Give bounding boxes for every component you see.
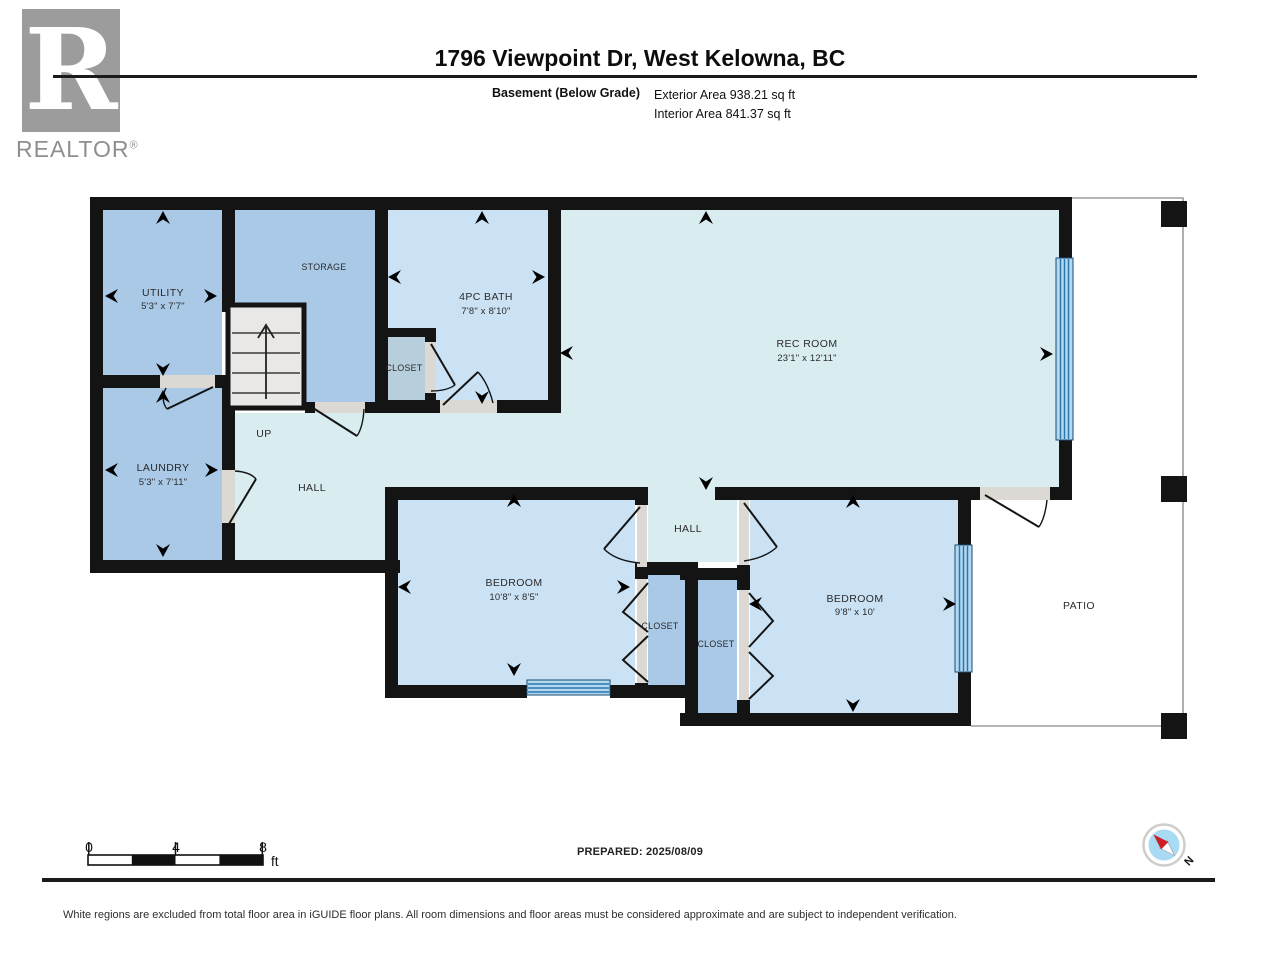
floor-plan-page: R REALTOR® 1796 Viewpoint Dr, West Kelow…	[0, 0, 1280, 960]
label-laundry: LAUNDRY	[137, 462, 190, 474]
disclaimer-text: White regions are excluded from total fl…	[63, 909, 957, 921]
room-laundry	[103, 388, 222, 560]
label-hall-2: HALL	[674, 523, 702, 535]
staircase	[228, 305, 304, 408]
label-bedroom-2: BEDROOM	[826, 593, 883, 605]
label-bath-dims: 7'8" x 8'10"	[461, 306, 510, 317]
label-closet-bath: CLOSET	[386, 363, 423, 373]
label-hall-1: HALL	[298, 482, 326, 494]
label-utility: UTILITY	[142, 287, 184, 299]
patio-post	[1161, 201, 1187, 227]
label-closet-1: CLOSET	[642, 621, 679, 631]
footer-rule	[42, 878, 1215, 882]
label-utility-dims: 5'3" x 7'7"	[141, 301, 185, 312]
patio-post	[1161, 713, 1187, 739]
label-bedroom-1-dims: 10'8" x 8'5"	[489, 592, 538, 603]
label-bath: 4PC BATH	[459, 291, 513, 303]
floor-plan-drawing: UTILITY 5'3" x 7'7" LAUNDRY 5'3" x 7'11"…	[0, 0, 1280, 960]
label-closet-2: CLOSET	[698, 639, 735, 649]
hall-opening	[648, 487, 715, 500]
label-patio: PATIO	[1063, 600, 1095, 612]
label-up: UP	[256, 428, 271, 440]
label-storage: STORAGE	[302, 262, 347, 272]
patio-post	[1161, 476, 1187, 502]
label-rec-room: REC ROOM	[777, 338, 838, 350]
prepared-date: PREPARED: 2025/08/09	[0, 846, 1280, 858]
label-bedroom-1: BEDROOM	[485, 577, 542, 589]
label-rec-room-dims: 23'1" x 12'11"	[777, 353, 836, 364]
label-laundry-dims: 5'3" x 7'11"	[139, 477, 188, 488]
label-bedroom-2-dims: 9'8" x 10'	[835, 607, 875, 618]
